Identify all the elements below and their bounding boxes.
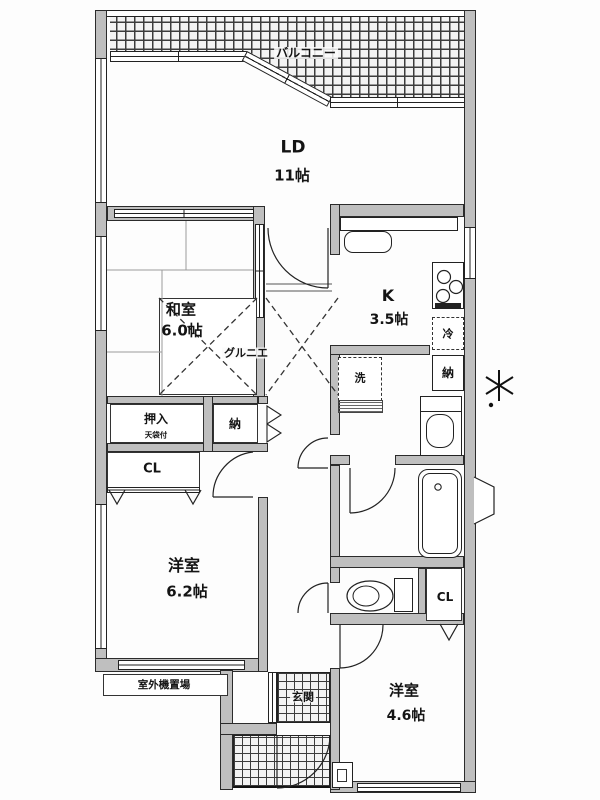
closet1-label: CL — [143, 463, 161, 476]
balcony-label: バルコニー — [274, 47, 338, 59]
wall-kitchen-top — [330, 204, 464, 217]
room-ld-size: 11帖 — [274, 169, 310, 184]
balcony-sash-right — [330, 97, 465, 108]
window-east46-bottom — [357, 783, 461, 792]
wall-washroom-bottom-b — [395, 455, 464, 465]
washer-label: 洗 — [355, 373, 366, 384]
vanity-sink — [426, 414, 454, 448]
room-washitsu-size: 6.0帖 — [161, 324, 203, 339]
entrance-step — [268, 672, 277, 723]
bath-bay-window — [474, 477, 494, 524]
room-kitchen-name: K — [382, 288, 394, 304]
room-west62-name: 洋室 — [168, 558, 200, 574]
room-east46-size: 4.6帖 — [387, 709, 426, 723]
room-washitsu-name: 和室 — [166, 303, 196, 318]
toilet-tank — [394, 578, 413, 612]
oshiire-label: 押入 — [144, 413, 168, 425]
storage-hall-label: 納 — [229, 418, 241, 430]
room-west62-size: 6.2帖 — [166, 585, 208, 600]
floor-plan: バルコニー LD 11帖 和室 6.0帖 グルニエ K 3.5帖 冷 洗 納 押… — [0, 0, 600, 800]
meter-box-inner — [337, 769, 347, 782]
fusuma-washitsu-top — [114, 209, 254, 218]
note-asterisk — [486, 370, 513, 407]
window-ld-left — [95, 58, 107, 203]
room-kitchen-size: 3.5帖 — [370, 313, 409, 327]
closet2-label: CL — [437, 591, 453, 603]
kitchen-sink — [344, 231, 392, 253]
wall-washroom-bottom-a — [330, 455, 350, 465]
window-west62-left — [95, 504, 107, 649]
toilet-bowl — [347, 581, 393, 611]
closet1-front — [107, 487, 200, 493]
wall-closet-divider — [203, 396, 213, 452]
balcony-sash-left — [110, 51, 247, 62]
storage-wash-label: 納 — [442, 367, 454, 379]
stove — [432, 262, 464, 309]
entrance-label: 玄関 — [290, 692, 316, 703]
bathtub-inner — [422, 473, 458, 554]
room-east46-name: 洋室 — [389, 684, 419, 699]
fridge-label: 冷 — [443, 329, 454, 340]
window-washitsu-left — [95, 236, 107, 331]
window-west62-bottom — [118, 660, 245, 670]
wall-closet-bottom — [107, 443, 268, 452]
kitchen-counter — [340, 217, 458, 231]
vanity-divider — [420, 411, 462, 412]
grenier-label: グルニエ — [222, 348, 270, 359]
outdoor-unit-label: 室外機置場 — [138, 680, 191, 691]
wall-toilet-cl-divider — [418, 568, 426, 618]
wall-corridor-left-a — [258, 396, 268, 404]
window-kitchen-right — [464, 227, 476, 279]
oshiire-note-label: 天袋付 — [145, 431, 168, 439]
folding-door-storage — [267, 406, 281, 442]
wall-corridor-left-b — [258, 497, 268, 672]
porch-hatch — [233, 735, 330, 788]
wall-closet-top — [107, 396, 258, 404]
balcony-railing-top — [95, 10, 476, 17]
wall-entrance-mid — [220, 723, 277, 735]
washer-pan — [338, 400, 383, 413]
wall-right — [464, 10, 476, 790]
room-ld-name: LD — [281, 140, 306, 157]
wall-kitchen-bottom — [330, 345, 430, 355]
wall-corridor-right-a — [330, 204, 340, 255]
